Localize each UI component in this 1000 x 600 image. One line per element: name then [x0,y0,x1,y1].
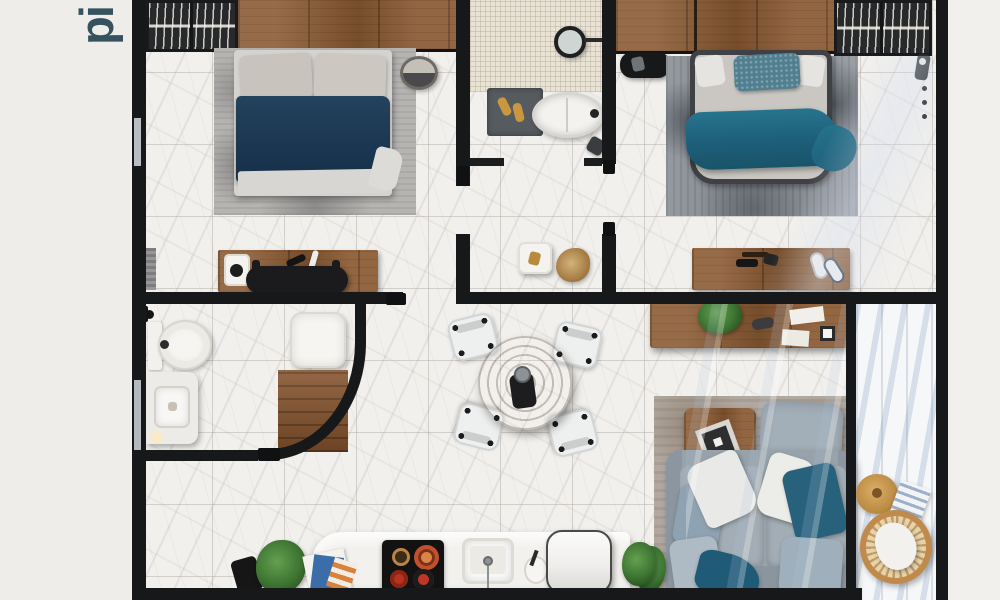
pot [414,545,439,570]
faucet-stem [487,566,489,588]
door-hinge [603,160,615,174]
bathtub-faucet [590,109,599,118]
wall-hook [922,86,927,91]
pot [392,548,410,566]
faucet [483,556,493,566]
wall-balcony-glass [846,304,856,600]
window-left [134,380,141,450]
window-left [134,118,141,166]
wall-bedroom-right [602,234,616,304]
utensil-cup [524,556,548,584]
mirror-arm [584,38,604,42]
knit-pillow [733,52,801,91]
toilet-button [160,340,169,349]
dried-plant [556,248,590,282]
floor-plan-render: pi [0,0,1000,600]
wall-hook [922,100,927,105]
sheet-fold [238,169,388,196]
refrigerator [546,530,612,594]
coat-stand-base [919,58,926,65]
pot [390,570,408,588]
pillow [239,52,313,102]
door-hinge [603,222,615,236]
framed-card [820,326,835,341]
wall-bedroom-left [456,234,470,304]
sink-drain [168,402,177,411]
wood-wardrobe [616,0,834,54]
table-bottle [514,366,531,383]
wall-middle [458,292,938,304]
door-hinge [457,166,469,186]
towel-bar-knob [145,310,154,319]
coffee-machine-dial [230,264,243,277]
paper [781,329,809,347]
radiator [146,248,156,290]
pillow [313,53,387,101]
pillow [796,54,826,88]
round-mirror [554,26,586,58]
bathroom-partition [584,158,602,166]
chair-armrest [252,260,260,274]
bathtub-divider [566,98,568,132]
watermark-logo: pi [60,0,132,62]
bathroom-partition [470,158,504,166]
door-hinge [386,293,406,305]
wall-hook [922,114,927,119]
vanity-light [150,430,164,444]
bench-item [631,56,646,72]
chair-armrest [332,260,340,274]
laundry-basket [400,56,438,90]
wall-bedroom-right [602,0,616,164]
closet-divider [880,2,883,54]
wall-bathroom-2 [146,450,258,461]
wire-closet [834,0,932,56]
wall-bedroom-left [456,0,470,186]
wood-wardrobe [238,0,456,52]
desk-item [736,259,758,267]
pot [413,569,434,590]
pillow [694,54,726,88]
closet-divider [190,2,193,50]
closet-divider [694,0,697,54]
stool-center [872,488,882,498]
wall-outer-bottom [132,588,862,600]
door-hinge [258,448,280,461]
bench [620,52,670,78]
wall-outer-left [132,0,146,600]
